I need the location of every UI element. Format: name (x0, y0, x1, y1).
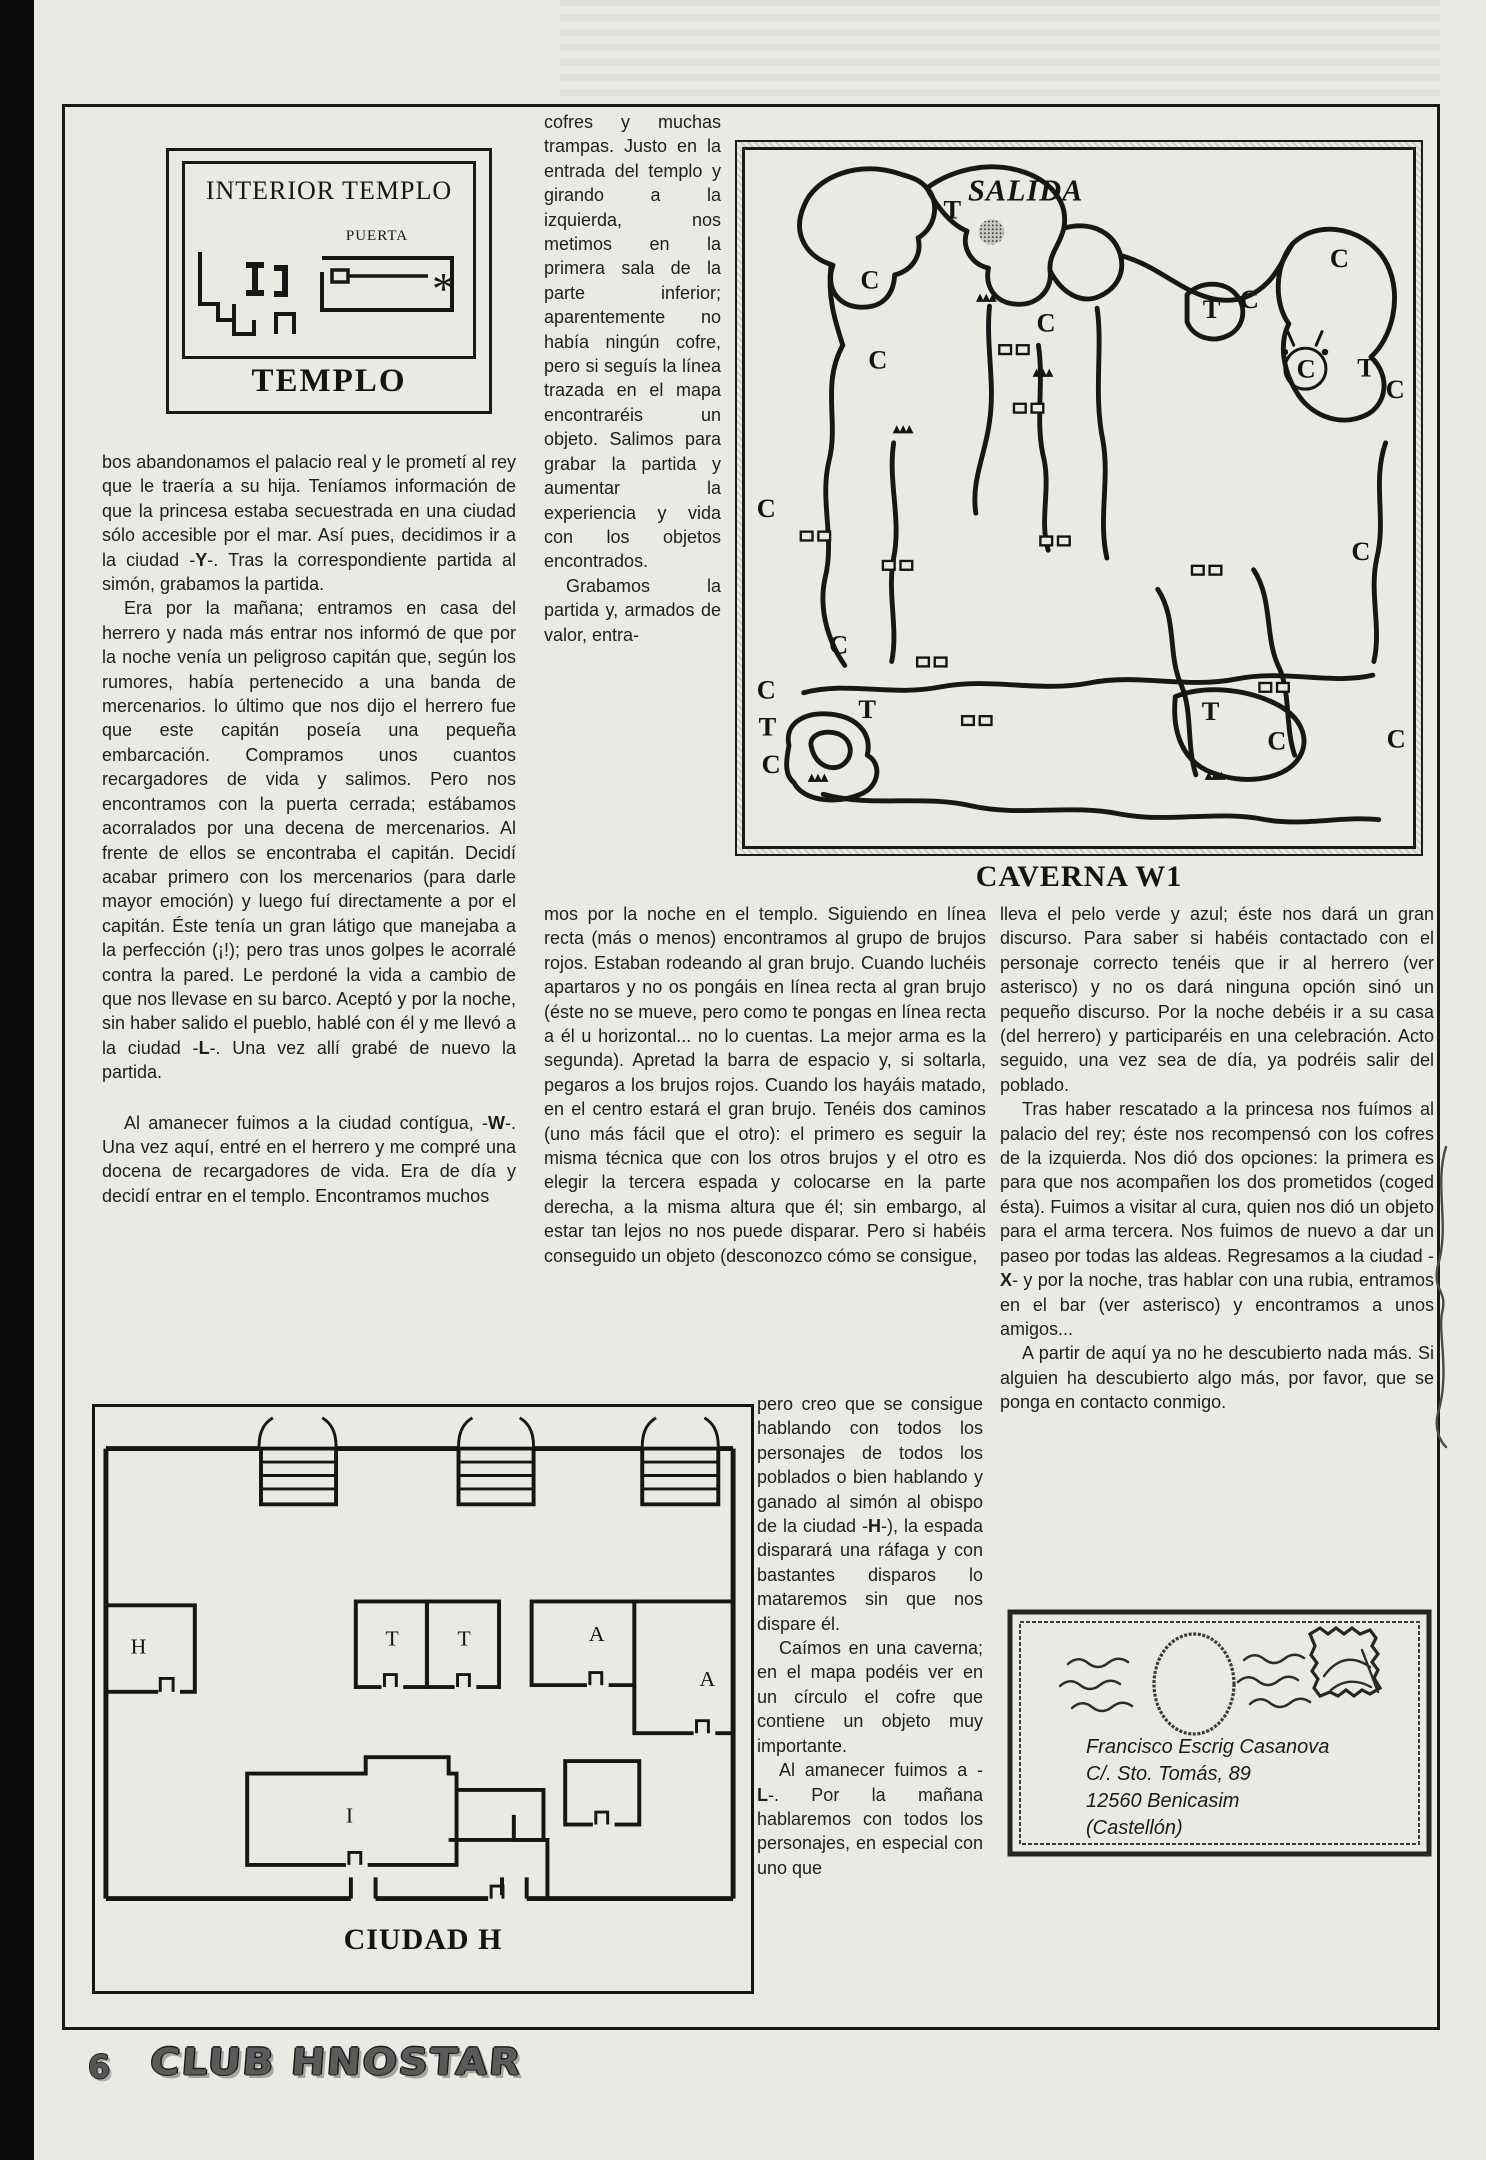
map-letter: C (757, 675, 776, 705)
paragraph: Era por la mañana; entramos en casa del … (102, 596, 516, 1084)
map-letter: C (1351, 536, 1370, 566)
door-icon (801, 532, 813, 541)
door-icon (1058, 537, 1070, 546)
door-icon (901, 561, 913, 570)
puerta-label: PUERTA (281, 228, 473, 245)
door-icon (1192, 566, 1204, 575)
map-letter: T (944, 194, 962, 224)
map-letter: C (757, 493, 776, 523)
door-arc-icons (259, 1418, 718, 1447)
spikes-icon: ▲▲▲ (976, 290, 998, 303)
door-icon (818, 532, 830, 541)
paragraph: cofres y muchas trampas. Justo en la ent… (544, 110, 721, 574)
map-letter: C (1267, 725, 1286, 755)
address-line: 12560 Benicasim (1086, 1788, 1329, 1815)
film-edge-strip (0, 0, 34, 2160)
caverna-map: SALIDA ▲▲▲▲▲▲▲▲▲▲▲▲▲▲▲ TCCCTCCTCCCCCTCTT… (745, 150, 1413, 846)
emphasis-rays (1283, 332, 1327, 354)
door-icon (980, 716, 992, 725)
scan-bleedthrough (560, 0, 1440, 96)
postmark-waves-icon (1060, 1655, 1310, 1711)
paragraph: Al amanecer fuimos a -L-. Por la mañana … (757, 1758, 983, 1880)
magazine-logo: CLUB HNOSTAR (149, 2040, 524, 2083)
door-icon (999, 345, 1011, 354)
map-letter: C (1240, 284, 1259, 314)
room-label: T (458, 1627, 471, 1651)
address-line: C/. Sto. Tomás, 89 (1086, 1761, 1329, 1788)
ciudad-map: HTTAAI (101, 1413, 741, 1913)
door-icon (1014, 404, 1026, 413)
spikes-icon: ▲▲▲ (1033, 366, 1055, 379)
salida-label: SALIDA (968, 174, 1083, 208)
room-label: A (700, 1667, 716, 1691)
postmark-oval-icon (1154, 1634, 1234, 1734)
map-letter: T (1357, 352, 1375, 382)
column-left: bos abandonamos el palacio real y le pro… (102, 450, 516, 1208)
door-jamb-icons (246, 265, 288, 294)
column-right: lleva el pelo verde y azul; éste nos dar… (1000, 902, 1434, 1415)
contact-address: Francisco Escrig Casanova C/. Sto. Tomás… (1086, 1734, 1329, 1842)
door-icon (1259, 683, 1271, 692)
templo-title: INTERIOR TEMPLO (185, 176, 473, 206)
exit-start-dot-texture (979, 219, 1004, 244)
envelope-figure: Francisco Escrig Casanova C/. Sto. Tomás… (1006, 1608, 1433, 1858)
map-letter: C (868, 345, 887, 375)
map-letter: C (762, 749, 781, 779)
door-icon (1040, 537, 1052, 546)
map-letters: TCCCTCCTCCCCCTCTTCC (757, 194, 1406, 778)
door-icon (1210, 566, 1222, 575)
paragraph: bos abandonamos el palacio real y le pro… (102, 450, 516, 596)
templo-figure: INTERIOR TEMPLO PUERTA * (166, 148, 492, 414)
city-buildings (106, 1601, 733, 1898)
paragraph: mos por la noche en el templo. Siguiendo… (544, 902, 986, 1268)
ciudad-caption: CIUDAD H (95, 1923, 751, 1957)
map-letter: C (1330, 243, 1349, 273)
margin-brace-squiggle (1428, 1145, 1456, 1450)
door-icon (883, 561, 895, 570)
spikes-icon: ▲▲▲ (893, 422, 915, 435)
door-icon (917, 658, 929, 667)
spikes-icon: ▲▲▲ (1205, 769, 1227, 782)
map-letter: C (1036, 308, 1055, 338)
city-room-labels: HTTAAI (131, 1622, 716, 1827)
map-letter: T (759, 712, 777, 742)
map-letter: T (1202, 696, 1220, 726)
templo-figure-inner: INTERIOR TEMPLO PUERTA * (182, 161, 476, 359)
paragraph: Al amanecer fuimos a la ciudad contígua,… (102, 1111, 516, 1209)
asterisk-icon: * (432, 263, 455, 314)
templo-floorplan: * (190, 252, 466, 346)
caverna-caption: CAVERNA W1 (735, 860, 1423, 894)
room-label: A (589, 1622, 605, 1646)
stamp-icon (1310, 1628, 1380, 1696)
room-label: I (346, 1804, 353, 1828)
column-middle-wide: mos por la noche en el templo. Siguiendo… (544, 902, 986, 1268)
door-icon (935, 658, 947, 667)
spikes-icon: ▲▲▲ (808, 771, 830, 784)
address-line: Francisco Escrig Casanova (1086, 1734, 1329, 1761)
door-icon (1277, 683, 1289, 692)
templo-caption: TEMPLO (169, 363, 489, 400)
door-icon (962, 716, 974, 725)
column-middle-narrow-top: cofres y muchas trampas. Justo en la ent… (544, 110, 721, 647)
circled-chest-icon: C (1283, 332, 1327, 390)
map-letter: T (858, 694, 876, 724)
paragraph: Caímos en una caverna; en el mapa podéis… (757, 1636, 983, 1758)
paragraph: A partir de aquí ya no he descubierto na… (1000, 1341, 1434, 1414)
door-icon (1017, 345, 1029, 354)
paragraph: lleva el pelo verde y azul; éste nos dar… (1000, 902, 1434, 1097)
room-label: H (131, 1635, 147, 1659)
map-letter: C (1387, 723, 1406, 753)
paragraph: Grabamos la partida y, armados de valor,… (544, 574, 721, 647)
ciudad-map-figure: HTTAAI CIUDAD H (92, 1404, 754, 1994)
dock-stairs (261, 1449, 718, 1505)
chest-letter: C (1297, 353, 1316, 383)
paragraph: Tras haber rescatado a la princesa nos f… (1000, 1097, 1434, 1341)
column-middle-narrow-lower: pero creo que se consigue hablando con t… (757, 1392, 983, 1880)
room-label: T (385, 1627, 398, 1651)
caverna-map-border: SALIDA ▲▲▲▲▲▲▲▲▲▲▲▲▲▲▲ TCCCTCCTCCCCCTCTT… (742, 147, 1416, 849)
map-letter: T (1203, 294, 1221, 324)
page-number: 6 (88, 2048, 110, 2086)
caverna-map-figure: SALIDA ▲▲▲▲▲▲▲▲▲▲▲▲▲▲▲ TCCCTCCTCCCCCTCTT… (735, 140, 1423, 856)
paragraph: pero creo que se consigue hablando con t… (757, 1392, 983, 1636)
map-letter: C (1386, 374, 1405, 404)
door-icon (1032, 404, 1044, 413)
puerta-room: * (322, 258, 455, 314)
magazine-page-scan: INTERIOR TEMPLO PUERTA * (0, 0, 1486, 2160)
map-letter: C (860, 265, 879, 295)
address-line: (Castellón) (1086, 1815, 1329, 1842)
map-letter: C (829, 630, 848, 660)
